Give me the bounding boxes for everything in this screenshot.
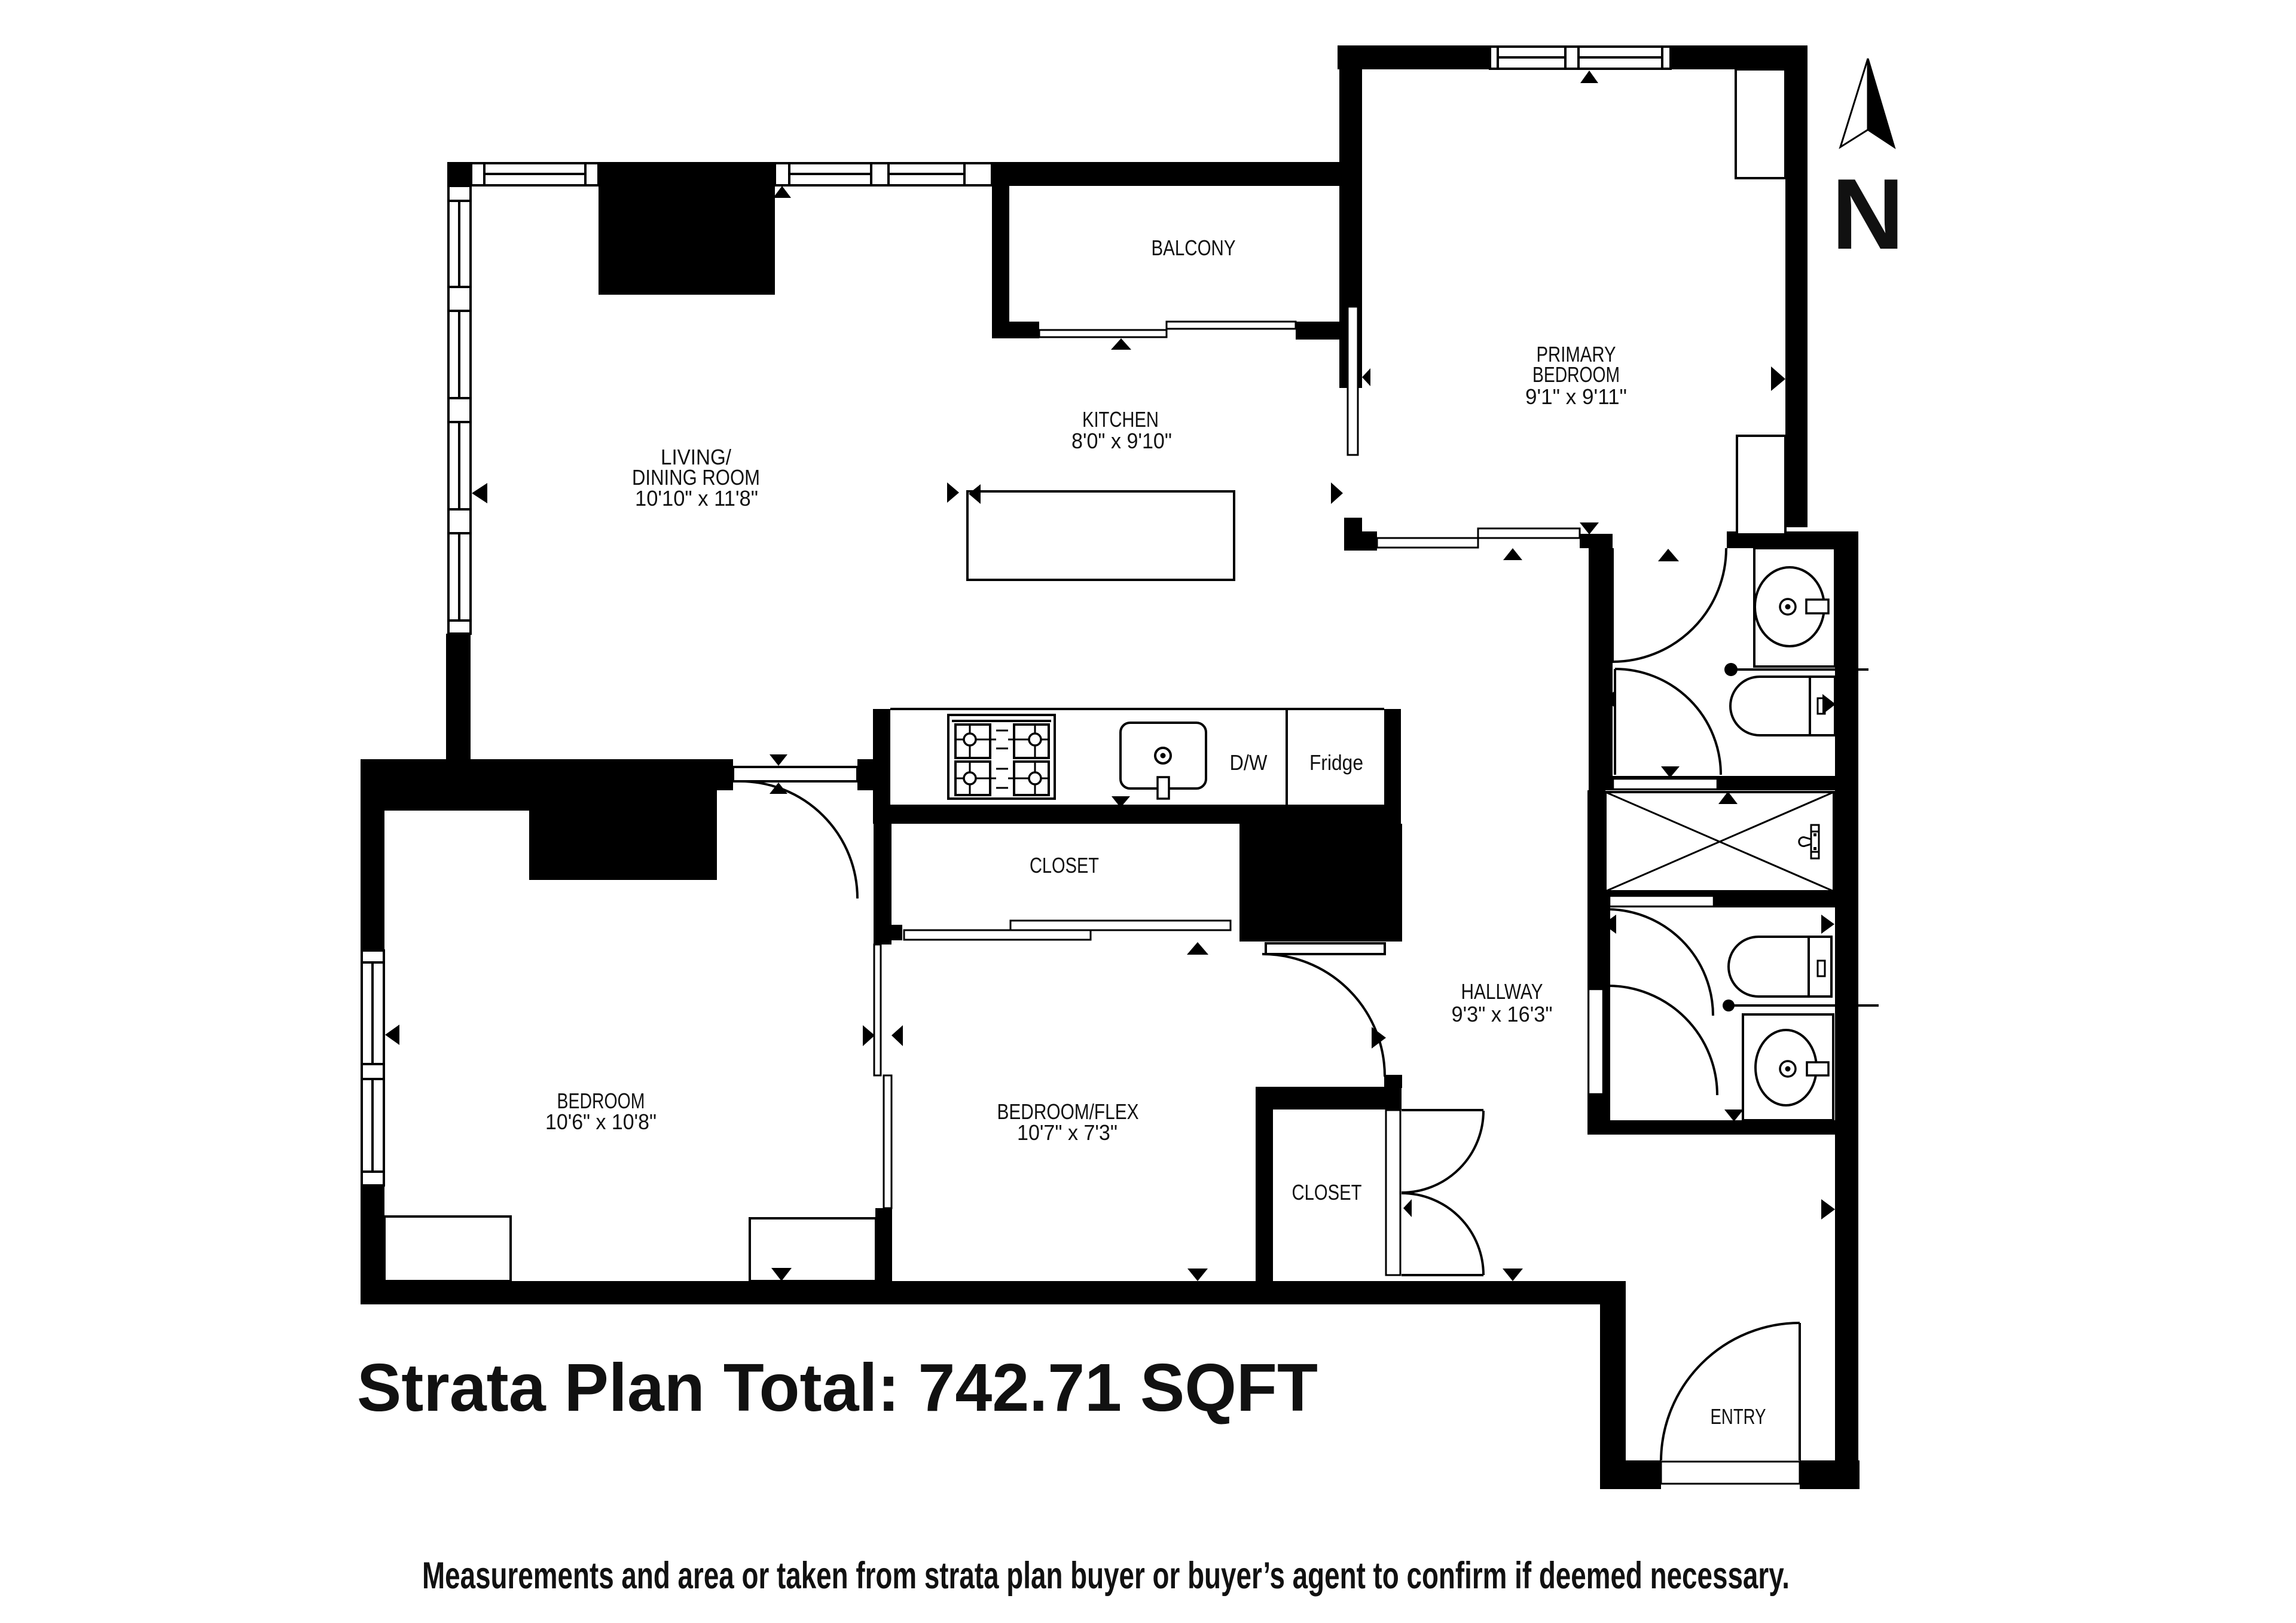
svg-text:9'1" x 9'11": 9'1" x 9'11" — [1525, 384, 1627, 409]
svg-text:KITCHEN: KITCHEN — [1082, 407, 1159, 432]
svg-text:D/W: D/W — [1230, 750, 1268, 775]
svg-text:10'6" x 10'8": 10'6" x 10'8" — [545, 1109, 657, 1134]
svg-text:ENTRY: ENTRY — [1711, 1404, 1766, 1429]
svg-text:N: N — [1831, 158, 1904, 270]
svg-text:Strata Plan Total: 742.71 SQFT: Strata Plan Total: 742.71 SQFT — [357, 1350, 1318, 1425]
svg-text:9'3" x 16'3": 9'3" x 16'3" — [1452, 1002, 1553, 1026]
svg-text:10'10" x 11'8": 10'10" x 11'8" — [635, 486, 758, 511]
svg-text:HALLWAY: HALLWAY — [1461, 979, 1543, 1004]
svg-text:CLOSET: CLOSET — [1030, 853, 1099, 878]
svg-text:8'0" x 9'10": 8'0" x 9'10" — [1071, 429, 1172, 453]
svg-text:BEDROOM: BEDROOM — [1532, 362, 1620, 387]
svg-text:BALCONY: BALCONY — [1152, 236, 1236, 260]
svg-text:Fridge: Fridge — [1309, 750, 1363, 775]
svg-text:Measurements and area or taken: Measurements and area or taken from stra… — [422, 1555, 1790, 1597]
svg-text:10'7" x 7'3": 10'7" x 7'3" — [1017, 1120, 1118, 1145]
svg-text:CLOSET: CLOSET — [1292, 1180, 1362, 1205]
